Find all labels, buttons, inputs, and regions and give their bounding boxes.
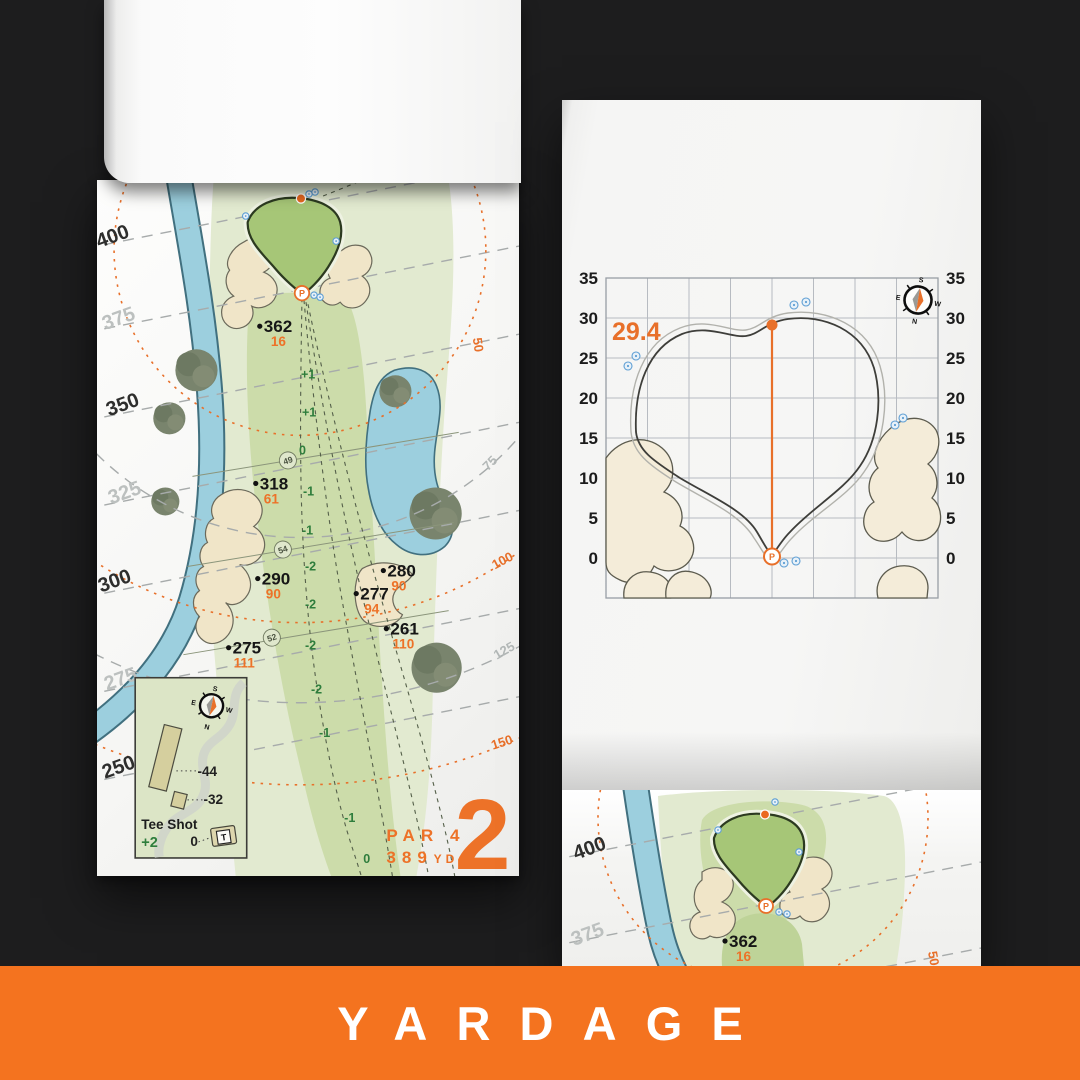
hole-location-dot xyxy=(296,194,305,203)
svg-text:+1: +1 xyxy=(301,367,315,381)
svg-text:400: 400 xyxy=(97,221,132,253)
svg-text:94: 94 xyxy=(364,602,380,617)
pin-label: P xyxy=(769,552,775,562)
page-fold-shadow xyxy=(562,732,981,790)
svg-text:375: 375 xyxy=(568,919,607,951)
arc-labels: 50 75 100 125 150 xyxy=(470,337,517,753)
yardage-banner: YARDAGE xyxy=(0,966,1080,1080)
svg-text:-1: -1 xyxy=(302,524,313,538)
tee-icon: T xyxy=(210,825,236,846)
pin-label: P xyxy=(763,902,769,912)
svg-text:0: 0 xyxy=(363,852,370,866)
svg-text:350: 350 xyxy=(103,389,142,421)
tee-shot-title: Tee Shot xyxy=(141,817,198,832)
next-hole-svg: P 400 375 50 362 16 xyxy=(562,790,981,966)
svg-text:90: 90 xyxy=(391,579,406,594)
svg-text:35: 35 xyxy=(946,269,965,288)
par-label: PAR 4 xyxy=(386,826,465,845)
pin-label: P xyxy=(299,289,305,299)
svg-text:0: 0 xyxy=(946,549,955,568)
next-hole-page: P 400 375 50 362 16 xyxy=(562,790,981,966)
svg-text:5: 5 xyxy=(946,509,955,528)
svg-text:90: 90 xyxy=(266,587,281,602)
green-depth-value: 29.4 xyxy=(612,318,661,346)
svg-text:0: 0 xyxy=(299,443,306,457)
svg-text:-1: -1 xyxy=(319,726,330,740)
svg-text:111: 111 xyxy=(234,656,256,671)
svg-text:15: 15 xyxy=(579,429,598,448)
svg-text:-2: -2 xyxy=(311,683,322,697)
svg-text:16: 16 xyxy=(736,949,752,964)
forward-tee-distance: -32 xyxy=(204,792,224,807)
svg-text:61: 61 xyxy=(264,491,280,506)
tee-box-forward xyxy=(171,791,187,809)
svg-text:-1: -1 xyxy=(303,484,314,498)
svg-text:15: 15 xyxy=(946,429,965,448)
bunkers xyxy=(606,418,941,598)
back-tee-distance: -44 xyxy=(197,764,217,779)
svg-text:0: 0 xyxy=(589,549,598,568)
svg-text:50: 50 xyxy=(470,337,487,353)
svg-text:-2: -2 xyxy=(305,598,316,612)
svg-text:+1: +1 xyxy=(302,405,316,419)
svg-text:25: 25 xyxy=(946,349,965,368)
svg-text:75: 75 xyxy=(479,453,500,474)
green-detail-booklet: P 29.4 35 30 25 20 15 10 5 0 35 30 25 xyxy=(562,100,981,966)
svg-text:100: 100 xyxy=(489,549,515,572)
svg-text:125: 125 xyxy=(491,638,517,662)
svg-text:20: 20 xyxy=(579,389,598,408)
svg-text:5: 5 xyxy=(589,509,598,528)
axis-labels-right: 35 30 25 20 15 10 5 0 xyxy=(946,269,965,568)
svg-text:35: 35 xyxy=(579,269,598,288)
svg-text:-2: -2 xyxy=(305,560,316,574)
compass-e: E xyxy=(895,295,901,303)
flipped-blank-page xyxy=(104,0,521,183)
svg-text:25: 25 xyxy=(579,349,598,368)
tee-zero: 0 xyxy=(190,834,198,849)
axis-labels-left: 35 30 25 20 15 10 5 0 xyxy=(579,269,598,568)
banner-title: YARDAGE xyxy=(308,996,772,1051)
svg-text:-1: -1 xyxy=(344,811,355,825)
svg-text:30: 30 xyxy=(579,309,598,328)
svg-text:250: 250 xyxy=(99,751,138,783)
yards-value: 389 xyxy=(386,848,433,867)
svg-text:10: 10 xyxy=(579,469,598,488)
svg-text:10: 10 xyxy=(946,469,965,488)
compass-w: W xyxy=(934,301,942,309)
svg-text:400: 400 xyxy=(570,833,609,865)
page-compass: S N E W xyxy=(892,274,945,330)
green-detail-svg: P 29.4 35 30 25 20 15 10 5 0 35 30 25 xyxy=(562,100,981,790)
green-detail-page: P 29.4 35 30 25 20 15 10 5 0 35 30 25 xyxy=(562,100,981,790)
hole-map-svg: P 49 54 52 +1 +1 0 -1 xyxy=(97,180,519,876)
hole-map-page: P 49 54 52 +1 +1 0 -1 xyxy=(97,180,519,876)
hole-location-dot xyxy=(761,810,770,819)
svg-text:300: 300 xyxy=(97,565,134,597)
svg-text:-2: -2 xyxy=(305,639,316,653)
hole-number: 2 xyxy=(455,779,511,876)
compass-n: N xyxy=(911,318,917,326)
tee-shot-score: +2 xyxy=(141,835,158,851)
svg-text:110: 110 xyxy=(392,637,414,652)
svg-text:20: 20 xyxy=(946,389,965,408)
svg-text:150: 150 xyxy=(489,732,514,753)
svg-text:50: 50 xyxy=(925,950,942,966)
svg-text:16: 16 xyxy=(271,334,287,349)
svg-text:375: 375 xyxy=(99,303,138,335)
compass-s: S xyxy=(918,277,924,285)
product-image: P 49 54 52 +1 +1 0 -1 xyxy=(0,0,1080,1080)
hole-location-dot xyxy=(767,320,778,331)
svg-text:325: 325 xyxy=(105,477,144,509)
svg-text:30: 30 xyxy=(946,309,965,328)
tee-shot-inset: -44 -32 Tee Shot +2 0 T xyxy=(135,678,247,858)
